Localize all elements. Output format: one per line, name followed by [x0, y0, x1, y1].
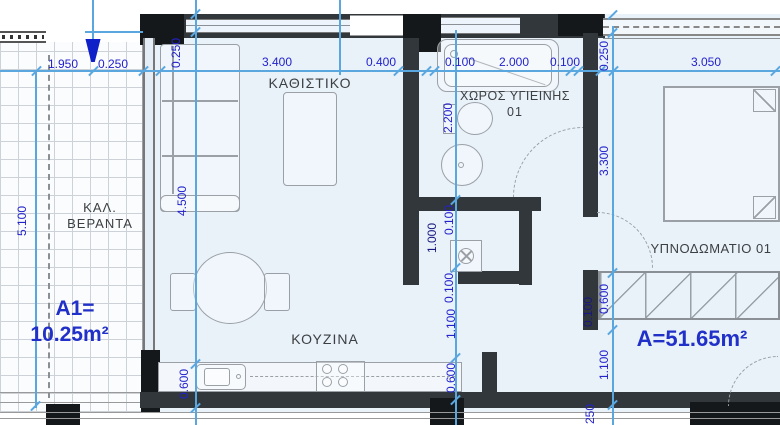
wall-bath-left	[403, 38, 419, 285]
window-bath-midline	[441, 24, 520, 25]
dim-label: 3.050	[681, 55, 731, 69]
area-veranda-label: A1=	[30, 297, 120, 321]
dim-line-mid-top	[339, 0, 341, 75]
floor-plan: 1.950 0.250 3.400 0.400 0.100 2.000 0.10…	[0, 0, 780, 425]
burner-4	[338, 377, 348, 387]
dim-line-bedroom	[612, 26, 614, 425]
pillow-top	[753, 89, 776, 112]
dim-label: 0.250	[170, 33, 183, 73]
dim-label: 0.100	[541, 55, 589, 69]
sofa-armrest	[160, 195, 240, 212]
dim-label: 5.100	[16, 198, 29, 244]
dim-label: 0.600	[598, 280, 611, 318]
sofa-cushion-line-1	[162, 100, 238, 102]
dim-label: 0.100	[436, 55, 484, 69]
dim-label: 0.600	[178, 364, 191, 404]
railing-balusters	[2, 35, 44, 39]
bedroom-wall-innerline	[603, 38, 780, 39]
wall-corridor-right	[519, 211, 532, 285]
room-label-bath: ΧΩΡΟΣ ΥΓΙΕΙΝΗΣ	[435, 89, 595, 103]
chair-right	[264, 273, 290, 311]
dim-label: 0.100	[443, 198, 456, 242]
room-label-veranda-1: ΚΑΛ.	[55, 200, 145, 215]
window-opening	[350, 15, 403, 36]
pillow-bottom	[753, 196, 776, 219]
dim-label: 0.100	[582, 292, 595, 332]
room-label-bedroom: ΥΠΝΟΔΩΜΑΤΙΟ 01	[640, 241, 780, 256]
exterior-line-2	[0, 418, 780, 419]
dim-label: 0.250	[88, 57, 138, 71]
wall-corridor-bottom	[458, 271, 519, 284]
dim-label: 1.950	[38, 57, 88, 71]
coffee-table	[283, 92, 337, 186]
burner-3	[322, 377, 332, 387]
block-bottom-left	[46, 404, 80, 425]
room-label-kitchen: ΚΟΥΖΙΝΑ	[255, 331, 395, 347]
dim-label: 3.400	[252, 55, 302, 69]
window-bedroom-dashline	[603, 26, 780, 28]
burner-2	[338, 364, 348, 374]
dim-label: 2.000	[490, 55, 538, 69]
dining-table	[193, 252, 267, 324]
room-label-bath-number: 01	[435, 105, 595, 119]
kitchen-faucet	[236, 374, 241, 379]
dim-label: 0.250	[598, 35, 611, 77]
wardrobe	[598, 271, 780, 320]
sofa-cushion-line-2	[162, 155, 238, 157]
area-veranda-value: 10.25m²	[12, 323, 127, 347]
wall-bath-bottom	[419, 197, 541, 211]
dim-label: 1.100	[445, 302, 458, 346]
burner-1	[322, 364, 332, 374]
bath-sink-drain	[458, 162, 464, 168]
dim-label: 1.000	[426, 212, 439, 264]
dim-label: 0.250	[584, 399, 597, 425]
window-bath	[441, 17, 520, 34]
kitchen-sink-basin	[204, 368, 230, 386]
veranda-bottom-rail	[0, 392, 140, 403]
dim-line-veranda	[35, 72, 37, 408]
exterior-line-1	[0, 412, 780, 413]
dim-label: 1.100	[598, 343, 611, 387]
room-label-veranda-2: ΒΕΡΑΝΤΑ	[50, 216, 150, 231]
dim-label: 4.500	[176, 178, 189, 224]
chair-left	[170, 273, 196, 311]
window-living	[186, 19, 350, 33]
window-living-midline	[186, 25, 350, 26]
area-apartment-value: A=51.65m²	[618, 326, 766, 352]
dim-label: 0.400	[356, 55, 406, 69]
dim-line-railing	[85, 31, 143, 33]
dim-label: 3.300	[598, 138, 611, 184]
room-label-living: ΚΑΘΙΣΤΙΚΟ	[230, 75, 390, 91]
wall-west-window	[143, 38, 155, 352]
dim-label: 0.600	[445, 358, 458, 398]
